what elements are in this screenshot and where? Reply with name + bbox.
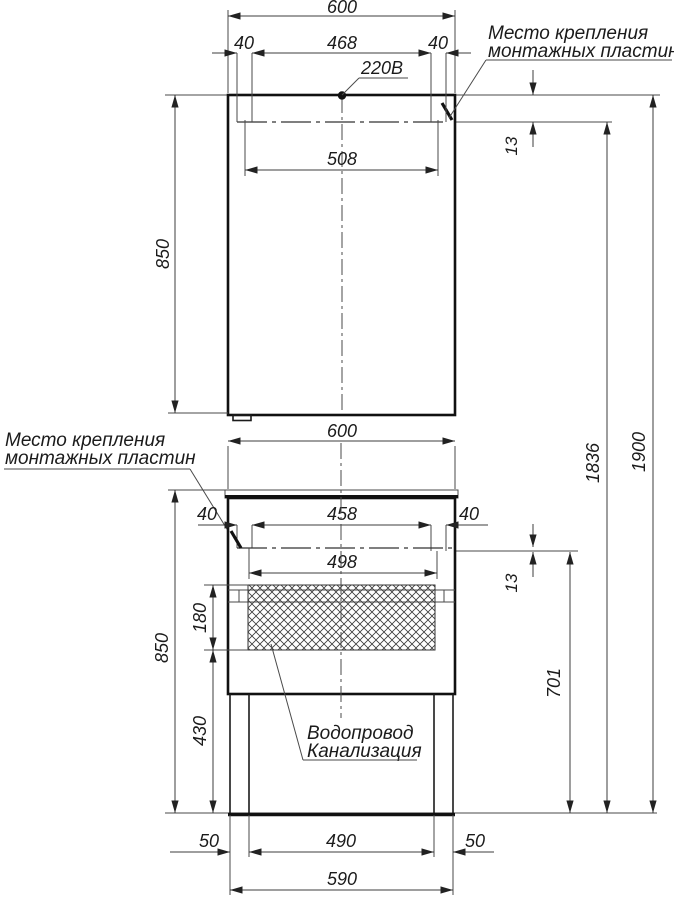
dim-mirror-width: 600 — [327, 0, 357, 17]
dim-mirror-plate-span: 468 — [327, 33, 357, 53]
dim-vanity-plate-offset-left: 40 — [197, 504, 217, 524]
dim-service-zone-height: 180 — [190, 603, 210, 633]
dim-plate-to-floor: 701 — [544, 668, 564, 698]
dim-vanity-plate-offset-right: 40 — [459, 504, 479, 524]
dim-mirror-plate-offset-right: 40 — [428, 33, 448, 53]
dim-mirror-hole-span: 508 — [327, 149, 357, 169]
mirror-height-dimension: 850 — [153, 95, 228, 413]
dim-vanity-hole-span: 498 — [327, 552, 357, 572]
dim-under-zone-height: 430 — [190, 716, 210, 746]
drawing-canvas: 220В 600 40 468 40 508 13 850 — [0, 0, 674, 900]
dim-mirror-plate-offset-left: 40 — [234, 33, 254, 53]
mounting-note-left-line2: монтажных пластин — [5, 448, 196, 469]
mounting-note-left: Место крепления монтажных пластин — [4, 430, 238, 547]
plate-to-floor-dimension: 701 — [544, 552, 570, 813]
dim-mirror-plate-depth: 13 — [502, 136, 521, 155]
mirror-cabinet — [228, 95, 455, 421]
dim-vanity-height: 850 — [152, 633, 172, 663]
mounting-note-top: Место крепления монтажных пластин — [449, 23, 674, 118]
dim-mirror-height: 850 — [153, 239, 173, 269]
dim-plate-line-height: 1836 — [583, 442, 603, 483]
plumbing-note-line2: Канализация — [307, 741, 422, 762]
power-point: 220В — [338, 58, 408, 100]
bottom-dimensions: 50 490 50 590 — [170, 815, 494, 895]
dim-vanity-plate-span: 458 — [327, 504, 357, 524]
mounting-note-top-line2: монтажных пластин — [488, 41, 674, 62]
dim-leg-offset-left: 50 — [199, 831, 219, 851]
dim-leg-span: 490 — [326, 831, 356, 851]
power-label: 220В — [360, 58, 403, 78]
dim-vanity-width: 600 — [327, 421, 357, 441]
overall-height-dimensions: 1836 1900 — [583, 95, 653, 813]
dim-leg-offset-right: 50 — [465, 831, 485, 851]
dim-vanity-plate-depth: 13 — [502, 573, 521, 592]
installation-drawing: 220В 600 40 468 40 508 13 850 — [0, 0, 674, 900]
dim-base-width: 590 — [327, 869, 357, 889]
dim-total-height: 1900 — [629, 432, 649, 472]
